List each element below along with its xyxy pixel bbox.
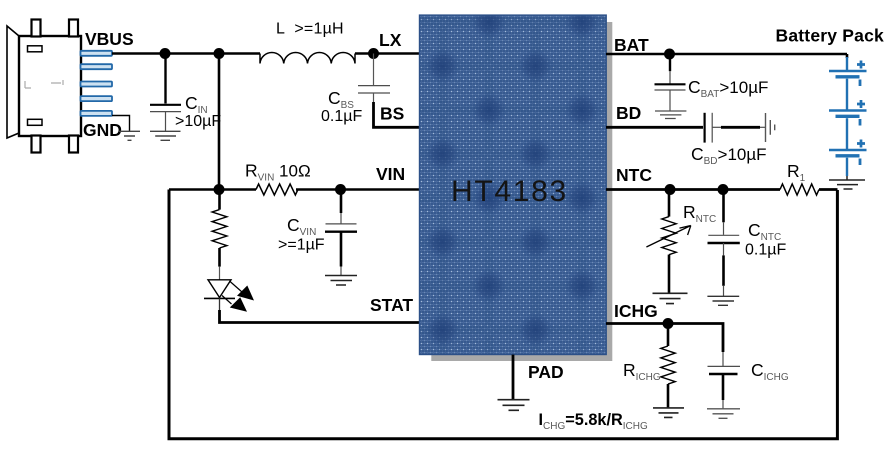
- svg-text:ICHG: ICHG: [614, 301, 658, 321]
- svg-text:BS: BS: [380, 104, 404, 124]
- svg-text:>10µF: >10µF: [175, 113, 221, 130]
- svg-text:VIN: VIN: [376, 164, 405, 184]
- svg-text:BD: BD: [616, 103, 641, 123]
- svg-text:0.1µF: 0.1µF: [745, 242, 786, 259]
- svg-text:0.1µF: 0.1µF: [321, 108, 362, 125]
- svg-text:HT4183: HT4183: [451, 175, 568, 208]
- svg-text:BAT: BAT: [614, 35, 649, 55]
- svg-text:GND: GND: [83, 120, 122, 140]
- svg-text:CBAT>10µF: CBAT>10µF: [688, 77, 768, 100]
- svg-text:VBUS: VBUS: [85, 29, 134, 49]
- svg-text:Battery Pack: Battery Pack: [776, 26, 885, 46]
- svg-text:PAD: PAD: [528, 362, 564, 382]
- svg-text:STAT: STAT: [370, 295, 413, 315]
- svg-text:>=1µF: >=1µF: [278, 237, 325, 254]
- svg-text:L >=1µH: L >=1µH: [276, 21, 344, 38]
- svg-text:RVIN 10Ω: RVIN 10Ω: [245, 161, 311, 184]
- svg-text:LX: LX: [379, 30, 402, 50]
- svg-text:NTC: NTC: [616, 165, 652, 185]
- svg-text:CBD>10µF: CBD>10µF: [691, 144, 767, 167]
